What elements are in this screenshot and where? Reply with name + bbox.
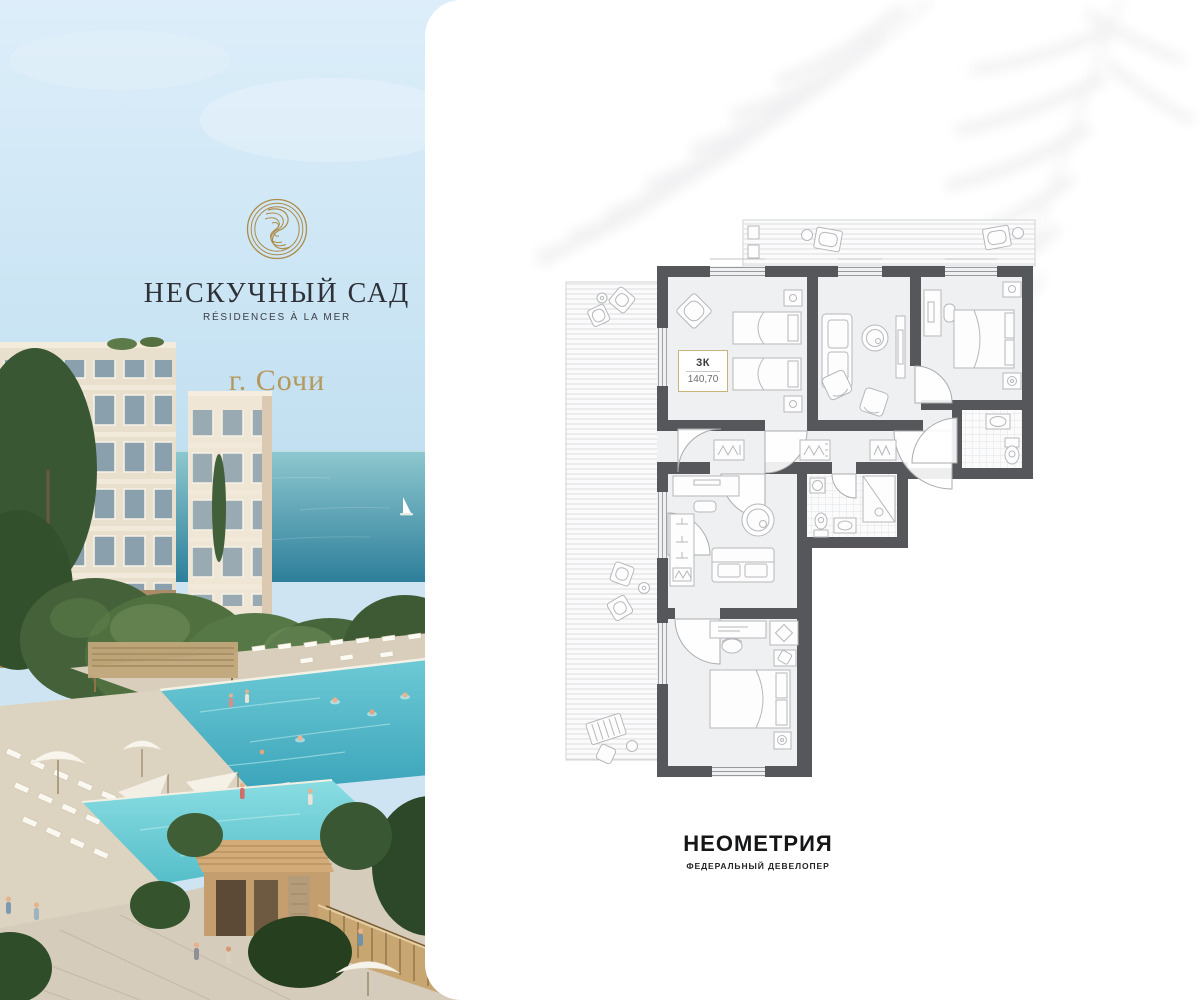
plan-label: 3К 140,70 <box>678 350 728 392</box>
developer-tagline: ФЕДЕРАЛЬНЫЙ ДЕВЕЛОПЕР <box>638 861 878 871</box>
terrace-left <box>566 282 658 765</box>
plan-label-divider <box>686 371 720 372</box>
page: НЕСКУЧНЫЙ САД RÉSIDENCES À LA MER г. Соч… <box>0 0 1200 1000</box>
floor-plan-drawing <box>560 218 1040 778</box>
resort-photo-illustration <box>0 0 460 1000</box>
developer-logo: НЕОМЕТРИЯ ФЕДЕРАЛЬНЫЙ ДЕВЕЛОПЕР <box>638 831 878 871</box>
floor-plan: 3К 140,70 <box>560 218 1040 778</box>
content-card: 3К 140,70 НЕОМЕТРИЯ ФЕДЕРАЛЬНЫЙ ДЕВЕЛОПЕ… <box>425 0 1200 1000</box>
cypress-tree <box>212 454 226 562</box>
developer-name: НЕОМЕТРИЯ <box>638 831 878 857</box>
plan-rooms-label: 3К <box>696 357 710 369</box>
resort-photo: НЕСКУЧНЫЙ САД RÉSIDENCES À LA MER г. Соч… <box>0 0 460 1000</box>
plan-area-value: 140,70 <box>688 374 719 385</box>
